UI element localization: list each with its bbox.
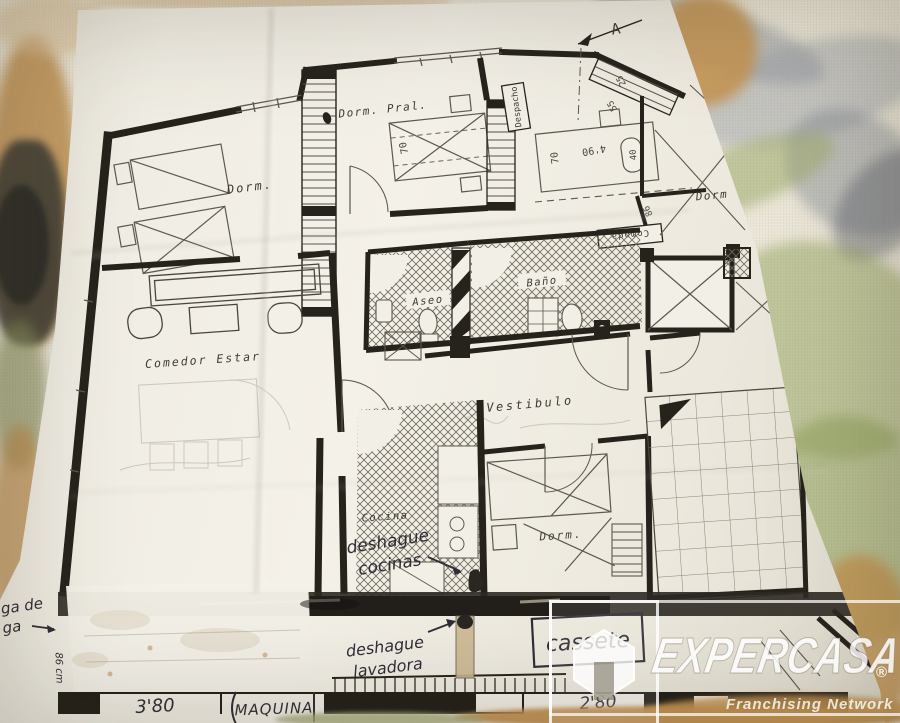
terrace <box>58 580 872 714</box>
floor-plan-drawing: Dorm. <box>0 0 900 723</box>
bed-width-dim: 70 <box>398 141 411 155</box>
section-letter: A <box>610 19 622 38</box>
vent-shaft <box>452 248 470 344</box>
left-note: ga <box>1 617 22 637</box>
room-label: Comedor Estar <box>145 349 262 371</box>
elevator-shaft <box>640 244 788 330</box>
room-label: Dorm. <box>225 177 273 197</box>
bedroom-top-left: Dorm. <box>107 144 274 276</box>
room-label: Dorm. Pral. <box>337 98 428 120</box>
dim: 4'90 <box>581 142 607 157</box>
bedroom-top-right: 25 55 40 4'90 70 86 Comoda <box>535 56 692 249</box>
room-label: Dorm. <box>538 528 583 544</box>
bedroom-bottom: Dorm. <box>484 436 650 600</box>
cassete-label: cassete <box>545 628 630 657</box>
dim: 70 <box>549 151 562 164</box>
stair-lobby <box>645 333 886 690</box>
room-label: Dorm <box>694 188 729 204</box>
pencil-dining-set <box>120 379 290 470</box>
left-note: ga de <box>0 594 44 618</box>
photo-scene: Dorm. <box>0 0 900 723</box>
bedroom-master: Dorm. Pral. 70 <box>337 58 515 214</box>
dim-380: 3'80 <box>135 695 175 718</box>
fabric-bottom-strip <box>275 712 485 723</box>
room-label: Vestibulo <box>486 393 574 415</box>
dim: 40 <box>629 149 640 161</box>
dim-86cm: 86 cm <box>52 652 64 684</box>
